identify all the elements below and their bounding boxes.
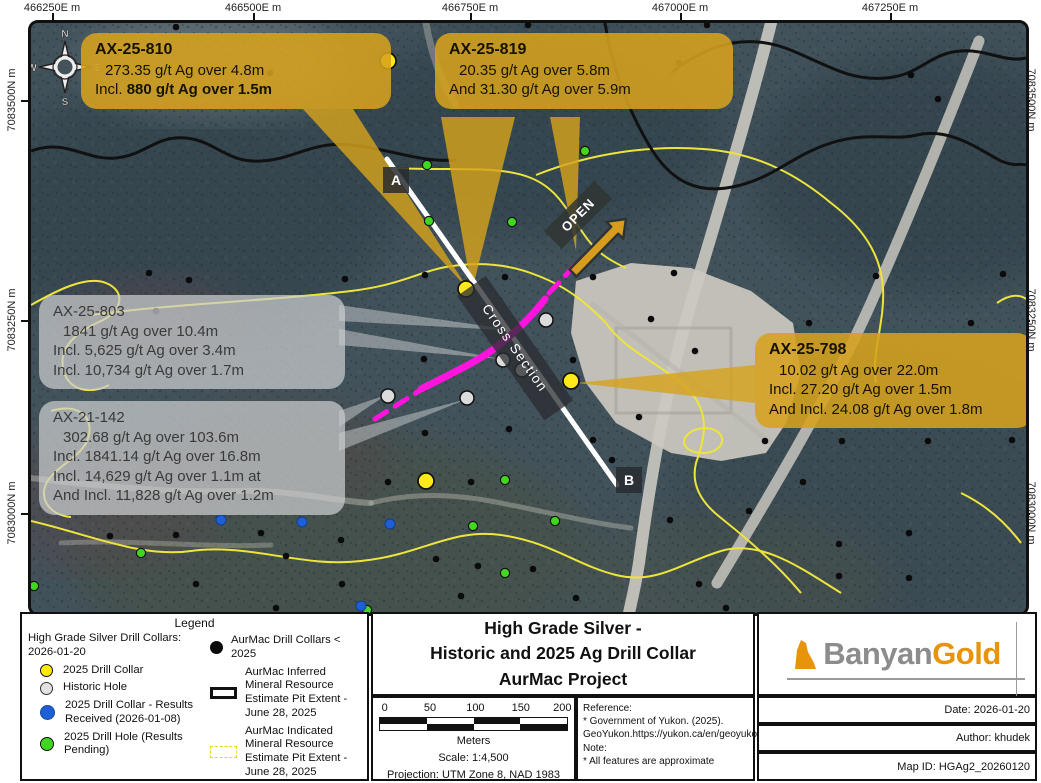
logo-underline [787,678,1025,680]
assay-interval: Incl. 27.20 g/t Ag over 1.5m [769,380,1019,400]
axis-tick [52,13,54,20]
scale-tick: 50 [424,702,436,714]
section-b-label: B [616,467,642,493]
black-collar-dot [609,457,616,464]
northing-label: 7083250N m [6,289,18,352]
black-collar-dot [746,508,753,515]
assay-interval: Incl. 1841.14 g/t Ag over 16.8m [53,447,331,467]
note-heading: Note: [583,742,748,755]
scale-tick: 150 [512,702,530,714]
map-author: Author: khudek [956,732,1030,744]
drillhole-id: AX-25-819 [449,40,719,61]
green-collar-dot [550,516,559,525]
legend-item-label: 2025 Drill Collar [63,664,143,678]
scale-bar [379,717,568,731]
black-collar-dot [906,530,913,537]
northing-label: 7083500N m [6,69,18,132]
historic-collar-dot [460,391,474,405]
legend-item-label: AurMac Drill Collars < 2025 [231,634,363,662]
note-line: * All features are approximate [583,755,748,768]
axis-tick [890,13,892,20]
black-collar-icon [210,641,223,654]
black-collar-dot [258,530,265,537]
black-collar-dot [590,274,597,281]
black-collar-dot [186,277,193,284]
green-collar-dot [31,581,39,590]
assay-interval: Incl. 14,629 g/t Ag over 1.1m at [53,467,331,487]
blue-collar-dot [297,517,307,527]
black-collar-dot [273,605,280,612]
black-collar-dot [468,479,475,486]
blue-collar-dot [356,601,366,611]
yellow-collar-icon [40,664,53,677]
author-row: Author: khudek [757,724,1037,752]
blue-collar-dot [216,515,226,525]
black-collar-dot [648,316,655,323]
map-id: Map ID: HGAg2_20260120 [897,761,1030,773]
legend-item: AurMac Indicated Mineral Resource Estima… [208,725,363,780]
assay-interval: 10.02 g/t Ag over 22.0m [769,361,1019,381]
satellite-map: N S W E A B Cross Section OPEN AX-25-810… [28,20,1029,616]
scale-unit: Meters [373,733,574,750]
black-collar-dot [458,593,465,600]
callout-ax-25-819: AX-25-819 20.35 g/t Ag over 5.8m And 31.… [435,33,733,109]
black-collar-dot [908,72,915,79]
assay-interval: Incl. 880 g/t Ag over 1.5m [95,80,377,100]
legend-item-label: 2025 Drill Collar - Results Received (20… [65,699,208,727]
legend-item-label: Historic Hole [63,681,127,695]
logo-wordmark: BanyanGold [823,636,1001,672]
assay-interval: And Incl. 24.08 g/t Ag over 1.8m [769,400,1019,420]
black-collar-dot [873,273,880,280]
indicated-pit-swatch [210,746,237,758]
black-collar-dot [530,566,537,573]
reference-line: GeoYukon.https://yukon.ca/en/geoyukon [583,728,748,741]
historic-collar-dot [381,389,395,403]
black-collar-dot [506,426,513,433]
black-collar-dot [968,320,975,327]
legend-item: AurMac Inferred Mineral Resource Estimat… [208,666,363,721]
green-collar-dot [500,475,509,484]
compass-s: S [62,97,69,108]
scale-tick-labels: 0 50 100 150 200 [379,702,568,715]
black-collar-dot [1009,437,1016,444]
map-id-row: Map ID: HGAg2_20260120 [757,752,1037,781]
legend-panel: Legend High Grade Silver Drill Collars: … [20,612,369,781]
compass-n: N [61,29,68,40]
northing-label: 7083000N m [6,482,18,545]
scale-ratio: Scale: 1:4,500 [373,750,574,767]
black-collar-dot [475,563,482,570]
green-collar-dot [468,521,477,530]
black-collar-dot [800,479,807,486]
legend-title: Legend [22,616,367,630]
black-collar-dot [433,556,440,563]
yellow-collar-dot [563,373,579,389]
legend-item-label: 2025 Drill Hole (Results Pending) [64,731,208,759]
drillhole-id: AX-25-798 [769,340,1019,361]
company-logo-panel: BanyanGold [757,612,1037,696]
black-collar-dot [839,438,846,445]
axis-tick [21,320,28,322]
black-collar-dot [385,479,392,486]
assay-interval: Incl. 10,734 g/t Ag over 1.7m [53,361,331,381]
section-a-label: A [383,167,409,193]
axis-tick [21,513,28,515]
legend-item: 2025 Drill Collar [26,664,208,678]
black-collar-dot [573,595,580,602]
legend-header: High Grade Silver Drill Collars: 2026-01… [28,632,208,660]
legend-right-column: AurMac Drill Collars < 2025 AurMac Infer… [208,630,363,783]
assay-interval: And 31.30 g/t Ag over 5.9m [449,80,719,100]
black-collar-dot [421,356,428,363]
reference-panel: Reference: * Government of Yukon. (2025)… [576,696,755,781]
inferred-pit-swatch [210,687,237,699]
legend-left-column: High Grade Silver Drill Collars: 2026-01… [26,630,208,783]
black-collar-dot [806,320,813,327]
black-collar-dot [906,575,913,582]
black-collar-dot [173,532,180,539]
black-collar-dot [342,276,349,283]
assay-interval: Incl. 5,625 g/t Ag over 3.4m [53,341,331,361]
black-collar-dot [590,437,597,444]
green-collar-dot [507,217,516,226]
black-collar-dot [193,581,200,588]
assay-interval: 302.68 g/t Ag over 103.6m [53,428,331,448]
scale-tick: 200 [553,702,571,714]
drillhole-id: AX-25-803 [53,302,331,322]
green-collar-dot [580,146,589,155]
legend-item: AurMac Drill Collars < 2025 [208,634,363,662]
axis-tick [253,13,255,20]
black-collar-dot [338,537,345,544]
axis-tick [680,13,682,20]
axis-tick [470,13,472,20]
callout-ax-25-803: AX-25-803 1841 g/t Ag over 10.4m Incl. 5… [39,295,345,389]
black-collar-dot [570,357,577,364]
blue-collar-icon [40,705,55,720]
green-collar-dot [424,216,433,225]
black-collar-dot [935,96,942,103]
map-title-block: High Grade Silver - Historic and 2025 Ag… [371,612,755,696]
assay-interval: 273.35 g/t Ag over 4.8m [95,61,377,81]
scale-tick: 0 [382,702,388,714]
legend-item: Historic Hole [26,681,208,695]
historic-collar-dot [539,313,553,327]
historic-hole-icon [40,682,53,695]
black-collar-dot [636,414,643,421]
map-title-line: AurMac Project [373,667,753,692]
black-collar-dot [283,553,290,560]
banyan-gold-logo-icon [793,636,819,672]
black-collar-dot [836,541,843,548]
black-collar-dot [502,274,509,281]
black-collar-dot [107,533,114,540]
compass-w: W [31,63,37,74]
black-collar-dot [925,438,932,445]
logo-crop-mark [1016,622,1018,706]
green-collar-dot [500,568,509,577]
drillhole-id: AX-21-142 [53,408,331,428]
black-collar-dot [146,270,153,277]
reference-heading: Reference: [583,702,748,715]
black-collar-dot [422,430,429,437]
map-title-line: Historic and 2025 Ag Drill Collar [373,641,753,666]
map-date: Date: 2026-01-20 [944,704,1030,716]
assay-interval: 1841 g/t Ag over 10.4m [53,322,331,342]
black-collar-dot [836,573,843,580]
black-collar-dot [671,270,678,277]
black-collar-dot [696,581,703,588]
yellow-collar-dot [418,473,434,489]
legend-item-label: AurMac Inferred Mineral Resource Estimat… [245,666,363,721]
legend-item-label: AurMac Indicated Mineral Resource Estima… [245,725,363,780]
callout-ax-25-810: AX-25-810 273.35 g/t Ag over 4.8m Incl. … [81,33,391,109]
black-collar-dot [692,348,699,355]
black-collar-dot [762,438,769,445]
black-collar-dot [723,605,730,612]
green-collar-icon [40,737,54,751]
map-title-line: High Grade Silver - [373,616,753,641]
green-collar-dot [136,548,145,557]
assay-interval: And Incl. 11,828 g/t Ag over 1.2m [53,486,331,506]
legend-item: 2025 Drill Collar - Results Received (20… [26,699,208,727]
blue-collar-dot [385,519,395,529]
callout-ax-21-142: AX-21-142 302.68 g/t Ag over 103.6m Incl… [39,401,345,515]
legend-item: 2025 Drill Hole (Results Pending) [26,731,208,759]
black-collar-dot [1000,271,1007,278]
scale-tick: 100 [466,702,484,714]
projection-note: Projection: UTM Zone 8, NAD 1983 [373,767,574,783]
black-collar-dot [667,517,674,524]
black-collar-dot [173,24,180,31]
assay-interval: 20.35 g/t Ag over 5.8m [449,61,719,81]
date-row: Date: 2026-01-20 [757,696,1037,724]
callout-ax-25-798: AX-25-798 10.02 g/t Ag over 22.0m Incl. … [755,333,1029,428]
axis-tick [21,100,28,102]
green-collar-dot [422,160,431,169]
reference-line: * Government of Yukon. (2025). [583,715,748,728]
map-sheet: 466250E m 466500E m 466750E m 467000E m … [0,0,1041,783]
drillhole-id: AX-25-810 [95,40,377,61]
scale-bar-panel: 0 50 100 150 200 Meters Scale: 1:4,500 P… [371,696,576,781]
black-collar-dot [422,272,429,279]
black-collar-dot [339,581,346,588]
